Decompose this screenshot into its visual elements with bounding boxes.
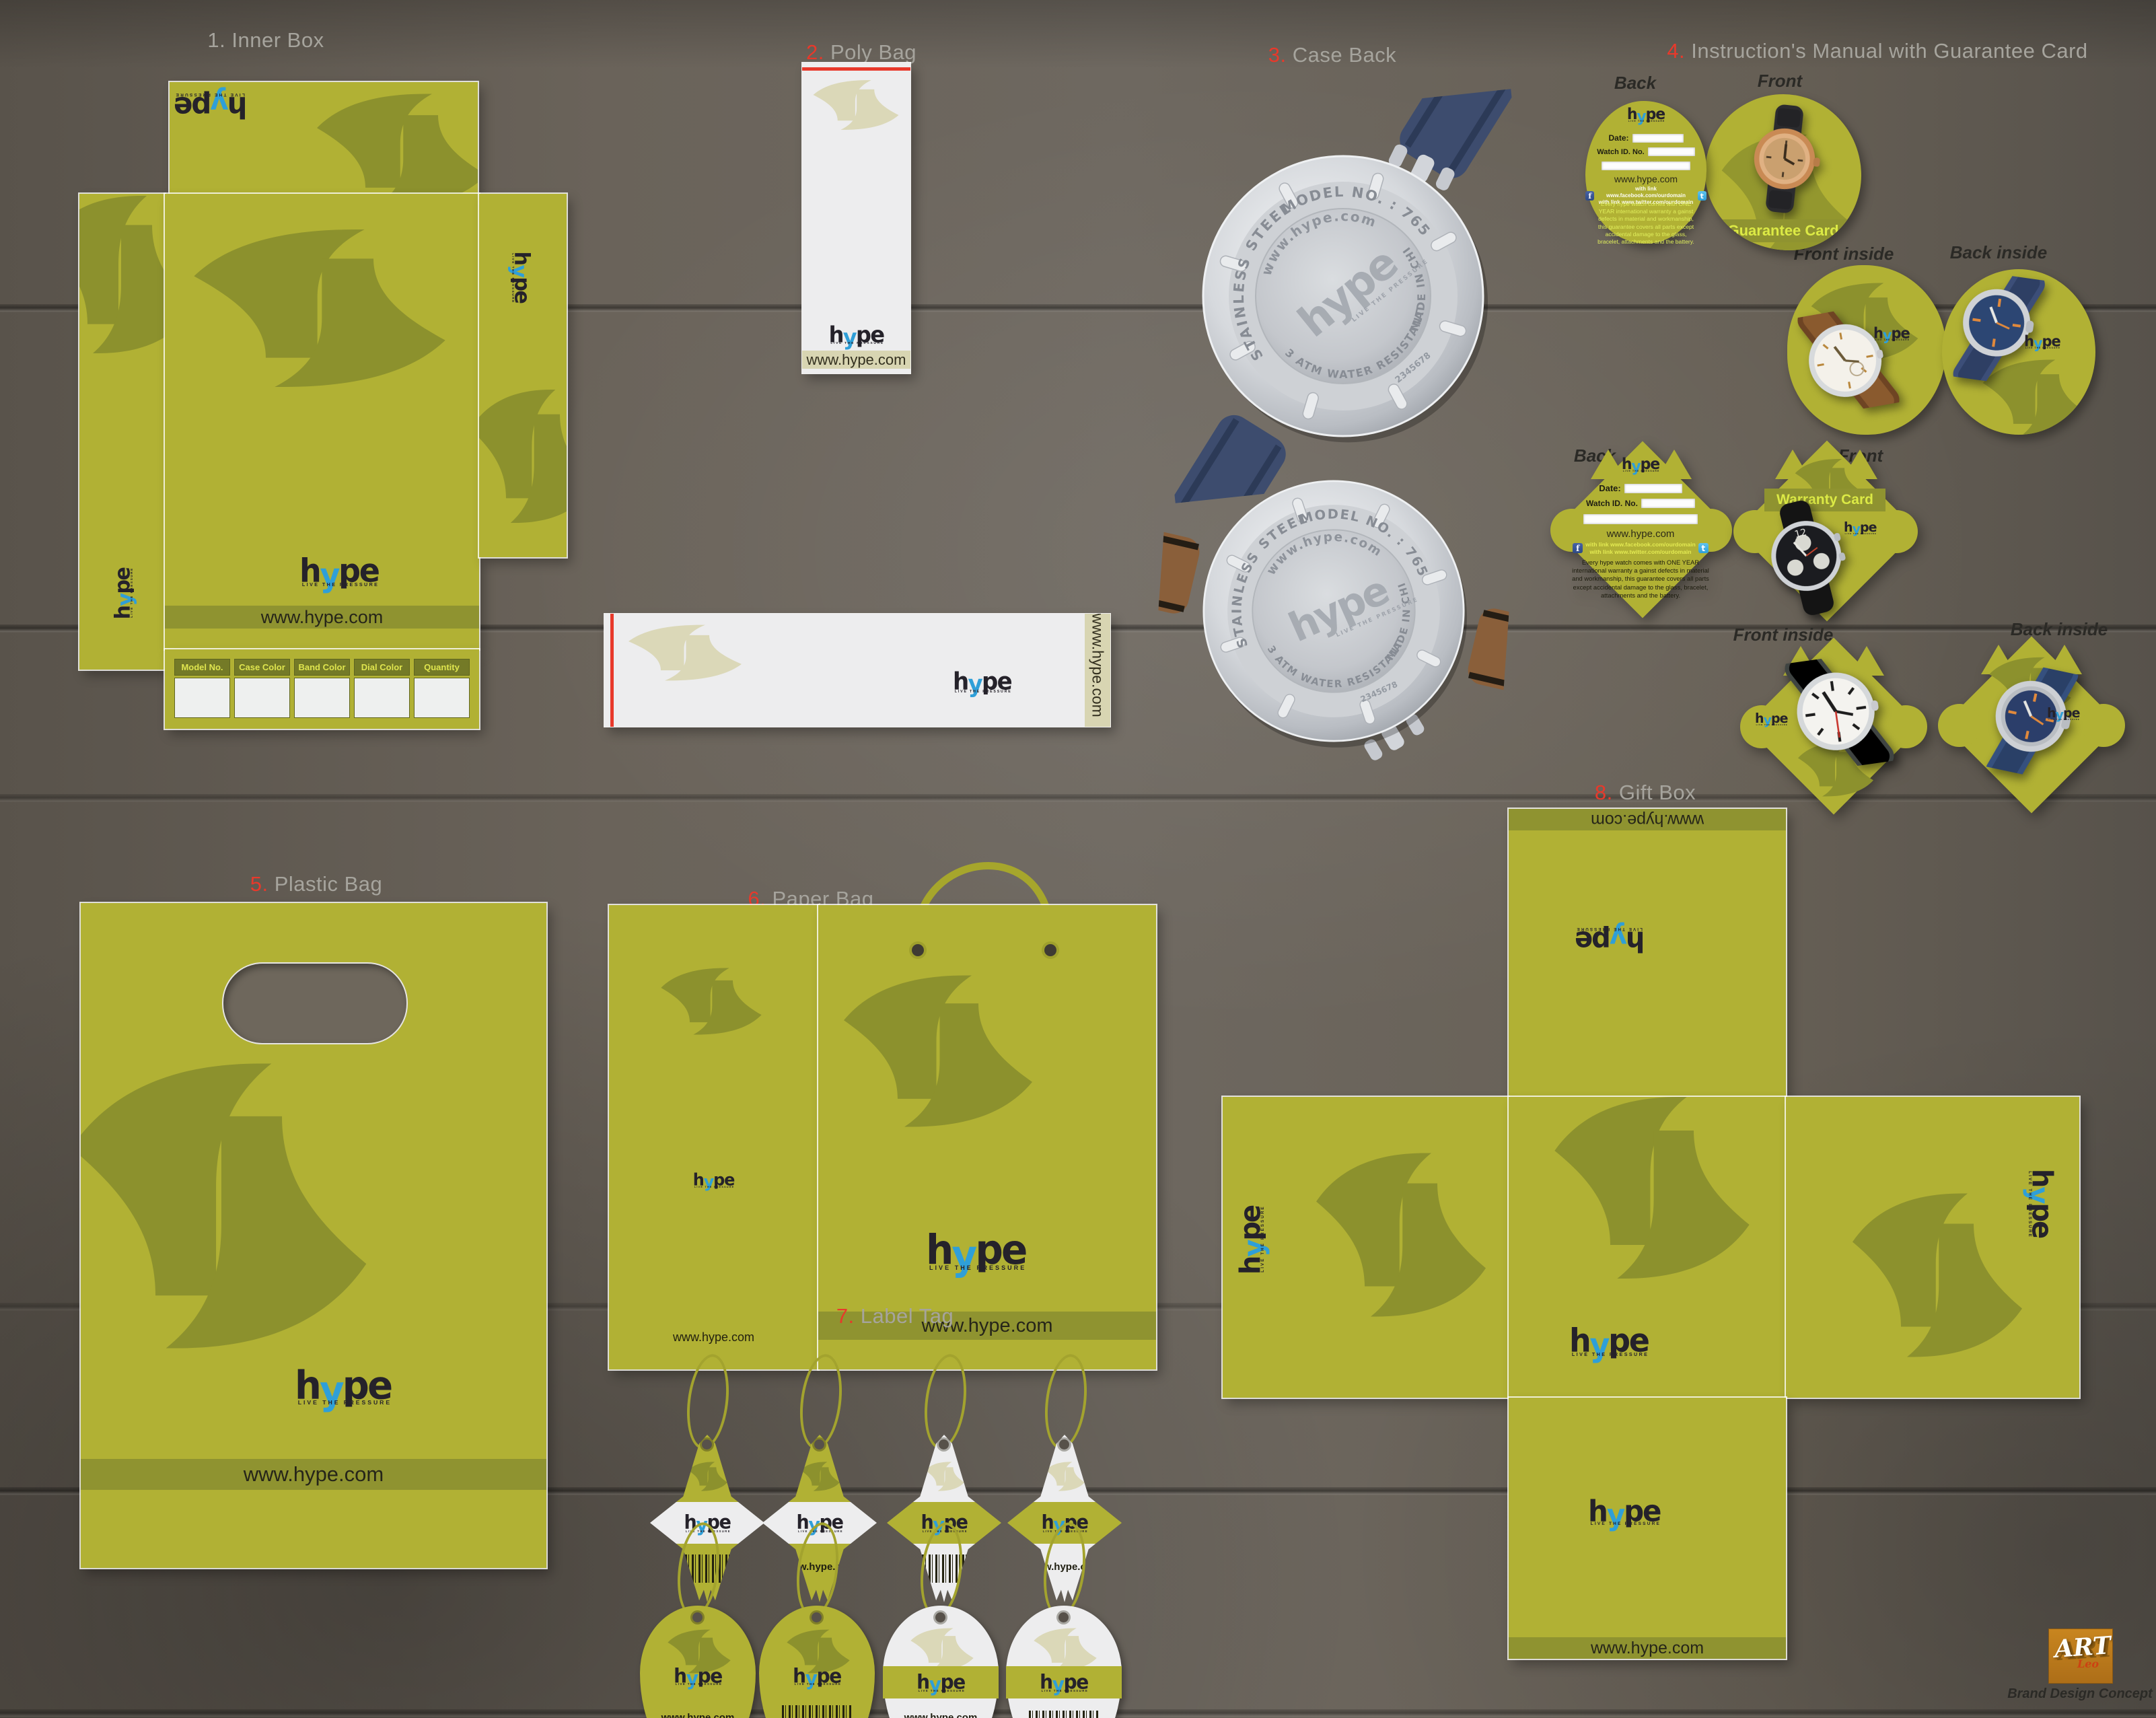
paper-bag-grommet (1044, 944, 1056, 956)
leaf-motif-icon (1310, 1144, 1492, 1326)
watch-id-field-label: Watch ID. No. (1586, 499, 1638, 508)
card-side-label-back-inside: Back inside (1938, 242, 2059, 263)
hype-logo: hypeLIVE THE PRESSURE (175, 94, 247, 120)
hype-logo: hypeLIVE THE PRESSURE (1755, 713, 1788, 725)
warranty-paragraph: Every hype watch comes with ONE YEAR int… (1595, 201, 1697, 246)
hype-logo: hypeLIVE THE PRESSURE (2029, 1169, 2054, 1238)
inner-box-left-flap: hypeLIVE THE PRESSURE (79, 194, 165, 670)
card-logo: hypeLIVE THE PRESSURE (2024, 335, 2060, 349)
plastic-bag-handle-hole (222, 962, 408, 1044)
hype-logo: hypeLIVE THE PRESSURE (513, 252, 531, 303)
table-header: Dial Color (354, 659, 410, 676)
paper-bag-main-panel: hypeLIVE THE PRESSURE www.hype.com (818, 905, 1156, 1369)
leaf-motif-icon (1548, 1097, 1756, 1289)
card-side-label-back: Back (1595, 73, 1676, 94)
hype-logo: hypeLIVE THE PRESSURE (1588, 1499, 1660, 1524)
tag-hole (1058, 1612, 1069, 1622)
leaf-motif-icon (185, 221, 454, 396)
paper-bag-logo: hypeLIVE THE PRESSURE (926, 1232, 1026, 1268)
gift-box-center-logo: hypeLIVE THE PRESSURE (1569, 1327, 1649, 1355)
card-logo: hypeLIVE THE PRESSURE (1585, 108, 1706, 122)
label-tag-bell-white-website: hypeLIVE THE PRESSURE www.hype.com (883, 1606, 999, 1718)
inner-box-right-flap: hypeLIVE THE PRESSURE (479, 194, 567, 557)
leaf-motif-icon (657, 964, 765, 1038)
watch-id-field-label: Watch ID. No. (1597, 148, 1644, 156)
hype-logo: hypeLIVE THE PRESSURE (1622, 458, 1659, 472)
hype-logo: hypeLIVE THE PRESSURE (953, 672, 1011, 692)
section-label-gift-box: 8. Gift Box (1541, 781, 1750, 805)
section-label-manual: 4. Instruction's Manual with Guarantee C… (1642, 39, 2113, 63)
hype-logo: hypeLIVE THE PRESSURE (693, 1173, 734, 1188)
hype-logo: hypeLIVE THE PRESSURE (2024, 335, 2060, 349)
inner-box-table-flap: Model No. Case Color Band Color Dial Col… (165, 649, 479, 729)
warranty-card-back: hypeLIVE THE PRESSURE Date: Watch ID. No… (1561, 439, 1720, 623)
date-field-label: Date: (1608, 133, 1628, 143)
leaf-motif-icon (1044, 1460, 1086, 1493)
tag-hole (702, 1439, 712, 1449)
card-logo: hypeLIVE THE PRESSURE (2047, 708, 2080, 721)
website-text: www.hype.com (609, 1330, 818, 1345)
poly-bag-horizontal: hypeLIVE THE PRESSURE www.hype.com (604, 614, 1110, 727)
card-logo: hypeLIVE THE PRESSURE (1755, 713, 1788, 726)
leaf-motif-icon (837, 967, 1039, 1135)
hype-logo: hypeLIVE THE PRESSURE (295, 1369, 391, 1403)
watch-case-back-image: STAINLESS STEEL MODEL NO. : 7654321 www.… (1147, 424, 1520, 797)
plastic-bag-website-band: www.hype.com (81, 1459, 546, 1490)
inner-box-table: Model No. Case Color Band Color Dial Col… (174, 659, 470, 718)
table-cell (294, 678, 350, 718)
watch-id-field-box (1641, 499, 1695, 508)
section-label-poly-bag: 2. Poly Bag (754, 40, 969, 65)
leaf-motif-icon (479, 382, 567, 530)
inner-box-main-panel: hypeLIVE THE PRESSURE www.hype.com (165, 194, 479, 649)
art-logo-leo-text: Leo (2077, 1657, 2099, 1670)
website-text: www.hype.com (883, 1712, 999, 1718)
leaf-motif-icon (810, 77, 902, 133)
gift-box-top-flap: www.hype.com hypeLIVE THE PRESSURE (1509, 809, 1786, 1097)
extra-field-box (1602, 162, 1690, 170)
watch-id-field-box (1648, 147, 1695, 156)
date-field-box (1624, 484, 1682, 493)
inner-box-website-band: www.hype.com (165, 606, 479, 629)
tag-hole (1059, 1439, 1069, 1449)
hype-logo: hypeLIVE THE PRESSURE (793, 1668, 841, 1684)
manual-back-inside-page: hypeLIVE THE PRESSURE (1942, 269, 2095, 435)
leaf-motif-icon (79, 194, 165, 362)
card-side-label-front: Front (1733, 71, 1827, 92)
gift-box-left-logo: hypeLIVE THE PRESSURE (1239, 1153, 1263, 1328)
barcode (782, 1705, 852, 1718)
date-field-box (1632, 134, 1684, 143)
guarantee-card-title-band: Guarantee Card (1705, 219, 1861, 242)
manual-front-inside-diamond: hypeLIVE THE PRESSURE (1748, 638, 1918, 814)
label-tag-bell-olive-website: hypeLIVE THE PRESSURE www.hype.com (640, 1606, 756, 1718)
hype-logo: hypeLIVE THE PRESSURE (1239, 1206, 1263, 1275)
inner-box-left-flap-logo: hypeLIVE THE PRESSURE (114, 530, 133, 657)
website-text: www.hype.com (640, 1712, 756, 1718)
hype-logo: hypeLIVE THE PRESSURE (1569, 1327, 1649, 1355)
guarantee-card-front: Guarantee Card hypeLIVE THE PRESSURE (1705, 94, 1861, 250)
art-logo-subtitle: Brand Design Concept (2002, 1686, 2156, 1702)
art-studio-logo: ART ART Leo (2048, 1628, 2113, 1684)
hype-logo: hypeLIVE THE PRESSURE (926, 1232, 1026, 1268)
leaf-motif-icon (624, 622, 746, 684)
website-text: www.hype.com (261, 607, 384, 628)
poly-bag-logo: hypeLIVE THE PRESSURE (953, 672, 1011, 692)
date-field-label: Date: (1599, 483, 1621, 493)
label-tag-bell-olive-barcode: hypeLIVE THE PRESSURE (759, 1606, 875, 1718)
watch-photo-white-dial (1773, 649, 1905, 776)
poly-bag-vertical: hypeLIVE THE PRESSURE www.hype.com (802, 63, 910, 373)
gift-box-center-panel: hypeLIVE THE PRESSURE (1509, 1097, 1786, 1398)
table-column: Model No. (174, 659, 230, 718)
gift-box-bottom-flap-logo: hypeLIVE THE PRESSURE (1588, 1499, 1660, 1524)
inner-box-right-flap-logo: hypeLIVE THE PRESSURE (512, 213, 531, 341)
gift-box-left-panel: hypeLIVE THE PRESSURE (1223, 1097, 1509, 1398)
extra-field-box (1583, 514, 1698, 524)
hype-logo: hypeLIVE THE PRESSURE (1627, 108, 1665, 122)
facebook-icon: f (1573, 543, 1583, 553)
table-column: Band Color (294, 659, 350, 718)
table-cell (174, 678, 230, 718)
table-cell (354, 678, 410, 718)
poly-bag-website-band: www.hype.com (1085, 614, 1110, 727)
card-logo: hypeLIVE THE PRESSURE (1873, 327, 1910, 341)
watch-photo-rose-gold (1732, 100, 1837, 217)
poly-bag-logo: hypeLIVE THE PRESSURE (802, 325, 910, 345)
table-column: Case Color (234, 659, 290, 718)
poly-bag-red-stripe (610, 614, 614, 727)
hype-logo: hypeLIVE THE PRESSURE (2047, 708, 2080, 719)
warranty-paragraph: Every hype watch comes with ONE YEAR int… (1569, 559, 1712, 600)
hype-logo: hypeLIVE THE PRESSURE (114, 568, 132, 620)
hype-logo: hypeLIVE THE PRESSURE (1844, 522, 1877, 534)
inner-box-logo: hypeLIVE THE PRESSURE (299, 557, 379, 585)
twitter-link-text: with link www.twitter.com/ourdomain (1585, 548, 1695, 556)
leaf-motif-icon (311, 87, 478, 194)
section-label-case-back: 3. Case Back (1211, 43, 1453, 67)
watch-photo-brown-leather (1787, 300, 1914, 419)
tag-hole (812, 1612, 822, 1622)
leaf-motif-icon (1846, 1184, 2028, 1366)
gift-box-right-logo: hypeLIVE THE PRESSURE (2029, 1116, 2054, 1291)
leaf-motif-icon (687, 1460, 729, 1493)
hype-logo: hypeLIVE THE PRESSURE (829, 325, 884, 345)
facebook-icon: f (1585, 191, 1594, 201)
website-text: www.hype.com (1089, 614, 1107, 720)
table-column: Dial Color (354, 659, 410, 718)
barcode (1029, 1711, 1099, 1718)
tag-logo: hypeLIVE THE PRESSURE (759, 1668, 875, 1686)
tag-hole (692, 1612, 703, 1622)
hype-logo: hypeLIVE THE PRESSURE (917, 1674, 965, 1690)
card-logo: hypeLIVE THE PRESSURE (1561, 458, 1720, 472)
facebook-link-text: with link www.facebook.com/ourdomain (1585, 541, 1695, 548)
manual-back-inside-diamond: hypeLIVE THE PRESSURE (1946, 635, 2116, 814)
card-logo: hypeLIVE THE PRESSURE (1844, 522, 1877, 535)
gift-box-right-panel: hypeLIVE THE PRESSURE (1786, 1097, 2079, 1398)
gift-box-bottom-flap: hypeLIVE THE PRESSURE www.hype.com (1509, 1398, 1786, 1659)
table-column: Quantity (414, 659, 470, 718)
label-tag-bell-white-barcode: hypeLIVE THE PRESSURE (1006, 1606, 1122, 1718)
website-text: www.hype.com (1591, 1639, 1704, 1658)
tag-logo: hypeLIVE THE PRESSURE (640, 1668, 756, 1686)
table-cell (414, 678, 470, 718)
tag-logo-band: hypeLIVE THE PRESSURE (883, 1666, 999, 1698)
website-text: www.hype.com (1561, 528, 1720, 540)
inner-box-top-flap-logo: hypeLIVE THE PRESSURE (175, 94, 247, 120)
brand-design-poster: 1. Inner Box hypeLIVE THE PRESSURE hypeL… (0, 0, 2156, 1718)
section-label-inner-box: 1. Inner Box (114, 28, 417, 52)
table-header: Case Color (234, 659, 290, 676)
hype-logo: hypeLIVE THE PRESSURE (1766, 248, 1800, 250)
leaf-motif-icon (924, 1460, 966, 1493)
warranty-card-front: Warranty Card 12 hypeLIVE THE PRESSURE (1744, 436, 1906, 627)
card-logo: hypeLIVE THE PRESSURE (1705, 248, 1861, 250)
leaf-motif-icon (81, 1048, 377, 1364)
gift-box-top-band: www.hype.com (1509, 809, 1786, 830)
twitter-icon: t (1698, 543, 1709, 553)
poly-bag-red-stripe (802, 67, 910, 71)
manual-front-inside-page: hypeLIVE THE PRESSURE (1787, 265, 1946, 435)
twitter-icon: t (1698, 191, 1706, 201)
hype-logo: hypeLIVE THE PRESSURE (299, 557, 379, 585)
website-text: www.hype.com (807, 351, 906, 369)
table-header: Quantity (414, 659, 470, 676)
website-text: www.hype.com (1585, 174, 1706, 184)
hype-logo: hypeLIVE THE PRESSURE (674, 1668, 722, 1684)
paper-bag-side-panel: hypeLIVE THE PRESSURE www.hype.com (609, 905, 818, 1369)
case-back-watch-brown: STAINLESS STEEL MODEL NO. : 7654321 www.… (1147, 424, 1520, 797)
table-header: Band Color (294, 659, 350, 676)
plastic-bag: hypeLIVE THE PRESSURE www.hype.com (81, 903, 546, 1568)
paper-bag-grommet (912, 944, 924, 956)
tag-logo-band: hypeLIVE THE PRESSURE (1006, 1666, 1122, 1698)
inner-box-top-flap: hypeLIVE THE PRESSURE (170, 82, 478, 194)
hype-logo: hypeLIVE THE PRESSURE (1040, 1674, 1088, 1690)
paper-bag-side-logo: hypeLIVE THE PRESSURE (609, 1173, 818, 1188)
facebook-link-text: with link www.facebook.com/ourdomain (1597, 186, 1694, 199)
website-text: www.hype.com (1591, 810, 1704, 830)
poly-bag-website-band: www.hype.com (802, 351, 910, 369)
hype-logo: hypeLIVE THE PRESSURE (1873, 327, 1910, 341)
tag-hole (939, 1439, 949, 1449)
guarantee-card-title: Guarantee Card (1727, 222, 1838, 240)
table-cell (234, 678, 290, 718)
plastic-bag-logo: hypeLIVE THE PRESSURE (295, 1369, 391, 1403)
watch-photo-blue-sport (1942, 269, 2055, 389)
guarantee-card-back: hypeLIVE THE PRESSURE Date: Watch ID. No… (1585, 101, 1706, 244)
hype-logo: hypeLIVE THE PRESSURE (1576, 929, 1645, 953)
table-header: Model No. (174, 659, 230, 676)
gift-box-bottom-band: www.hype.com (1509, 1637, 1786, 1659)
tag-hole (935, 1612, 945, 1622)
leaf-motif-icon (799, 1460, 841, 1493)
section-label-label-tag: 7. Label Tag (794, 1304, 996, 1328)
section-label-plastic-bag: 5. Plastic Bag (209, 872, 424, 896)
tag-hole (814, 1439, 824, 1449)
gift-box-top-flap-logo: hypeLIVE THE PRESSURE (1576, 929, 1645, 953)
website-text: www.hype.com (244, 1462, 384, 1487)
